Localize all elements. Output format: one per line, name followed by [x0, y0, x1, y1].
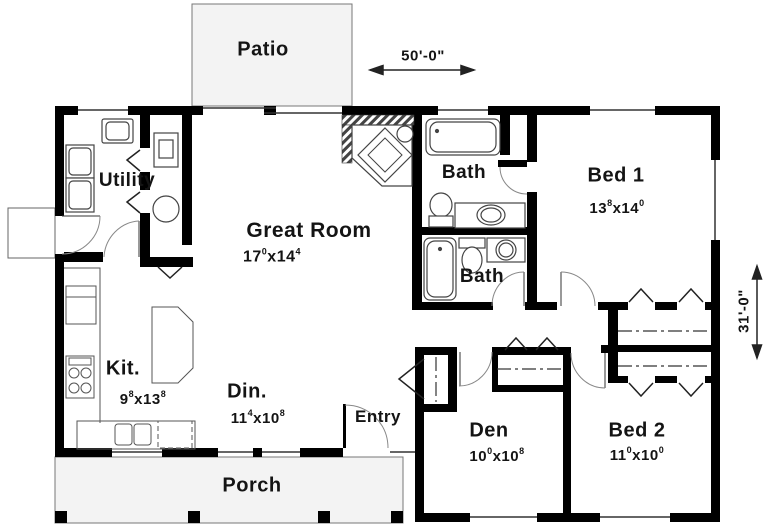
bed2-label: Bed 2 — [609, 420, 666, 443]
width-dimension-label: 50'-0" — [401, 48, 445, 65]
depth-dim-arrow-bottom — [753, 345, 762, 358]
utility-label: Utility — [99, 170, 155, 192]
kitchen-dimensions: 98x138 — [120, 390, 166, 408]
bed1-label: Bed 1 — [588, 165, 645, 188]
depth-dim-arrow-top — [753, 266, 762, 279]
laundry-sink-basin — [106, 122, 129, 140]
washer-basin — [69, 148, 91, 175]
sink-lower-basin — [499, 243, 513, 257]
bathtub-upper-basin — [430, 122, 496, 152]
bed2-door-arc — [571, 353, 605, 388]
bath-lower-label: Bath — [460, 266, 504, 288]
fireplace-hatch-left — [342, 125, 352, 163]
dim-b-sup: 8 — [161, 389, 167, 399]
exterior-stoop — [8, 208, 55, 258]
dining-label: Din. — [227, 381, 267, 404]
dim-a-sup: 0 — [627, 445, 633, 455]
width-dim-arrow-left — [370, 66, 383, 75]
bed1-closet-bifold-right — [679, 289, 703, 302]
dim-sep: x — [134, 391, 143, 408]
dim-sep: x — [267, 249, 276, 266]
utility-closet-bifold-bottom — [158, 267, 182, 278]
dishwasher — [158, 421, 192, 448]
dim-sep: x — [632, 447, 641, 464]
bed1-dimensions: 138x140 — [589, 199, 644, 217]
dim-b-sup: 8 — [280, 408, 286, 418]
sink-upper-basin — [481, 208, 501, 222]
dim-a: 11 — [610, 447, 627, 464]
exterior-door-arc — [62, 216, 100, 254]
dim-b: 10 — [501, 448, 519, 465]
entry-label: Entry — [355, 407, 401, 427]
bathtub-upper-drain — [436, 130, 439, 133]
kitchen-label: Kit. — [106, 358, 140, 381]
dim-b-sup: 4 — [296, 246, 302, 256]
dim-sep: x — [613, 200, 622, 217]
kitchen-island — [152, 307, 193, 383]
fireplace-flue — [397, 126, 413, 142]
bed2-dimensions: 110x100 — [610, 446, 664, 464]
toilet-upper-tank — [429, 216, 453, 227]
dim-a: 10 — [469, 448, 487, 465]
great-room-label: Great Room — [246, 219, 371, 243]
bathtub-lower-drain — [439, 248, 442, 251]
dim-a-sup: 0 — [487, 446, 493, 456]
refrigerator — [66, 286, 96, 324]
dim-a: 17 — [243, 249, 262, 266]
bed1-door-arc — [561, 272, 595, 306]
dim-b: 14 — [621, 200, 639, 217]
patio-label: Patio — [237, 39, 288, 62]
dim-a-sup: 0 — [262, 246, 268, 256]
kitchen-sink-left — [115, 424, 132, 445]
great-room-dimensions: 170x144 — [243, 247, 301, 266]
fireplace — [342, 115, 414, 186]
dim-a: 13 — [589, 200, 607, 217]
dim-sep: x — [253, 410, 262, 427]
dim-b: 14 — [277, 249, 296, 266]
utility-shelf-inner — [159, 140, 173, 158]
utility-closet-bifold-lower — [127, 192, 140, 213]
width-dim-arrow-right — [461, 66, 474, 75]
bed2-closet-bifold-left — [629, 383, 653, 396]
dim-b-sup: 0 — [639, 198, 645, 208]
dryer-basin — [69, 181, 91, 209]
dim-a-sup: 8 — [129, 389, 135, 399]
floor-plan: Patio 50'-0" 31'-0" Great Room 170x144 U… — [0, 0, 770, 527]
dim-a: 11 — [231, 410, 248, 427]
utility-door-arc — [104, 221, 139, 257]
dim-b: 13 — [143, 391, 161, 408]
toilet-upper-bowl — [430, 193, 452, 217]
den-door-arc — [459, 352, 492, 386]
den-label: Den — [469, 420, 508, 443]
water-heater — [153, 196, 179, 222]
dim-b: 10 — [641, 447, 659, 464]
kitchen-sink-right — [134, 424, 151, 445]
dim-a-sup: 4 — [248, 408, 254, 418]
range-panel — [69, 358, 91, 365]
bed1-closet-bifold-left — [629, 289, 653, 302]
ensuite-door-arc — [500, 167, 527, 194]
fireplace-hatch-top — [342, 115, 414, 125]
dim-b-sup: 0 — [659, 445, 665, 455]
dim-sep: x — [493, 448, 502, 465]
dim-b-sup: 8 — [519, 446, 525, 456]
bed2-closet-bifold-right — [679, 383, 703, 396]
bath-upper-label: Bath — [442, 162, 486, 184]
dim-a-sup: 8 — [607, 198, 613, 208]
depth-dimension-label: 31'-0" — [736, 289, 753, 333]
porch-label: Porch — [222, 475, 281, 498]
den-dimensions: 100x108 — [469, 447, 524, 465]
utility-closet-bifold-upper — [127, 150, 140, 171]
dining-dimensions: 114x108 — [231, 409, 285, 427]
dim-b: 10 — [262, 410, 280, 427]
dim-a: 9 — [120, 391, 129, 408]
